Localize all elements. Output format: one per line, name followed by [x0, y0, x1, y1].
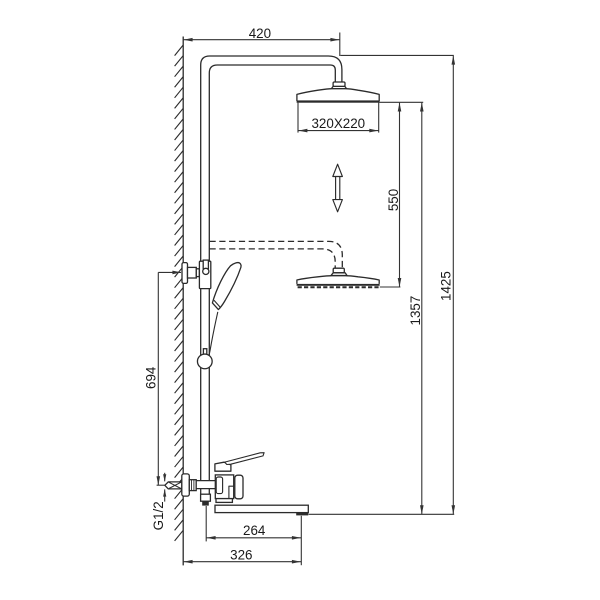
svg-text:320X220: 320X220	[311, 116, 365, 131]
svg-text:264: 264	[243, 523, 266, 538]
svg-text:420: 420	[249, 26, 271, 41]
svg-text:694: 694	[144, 366, 159, 389]
svg-text:1357: 1357	[408, 296, 423, 326]
svg-text:1425: 1425	[438, 271, 453, 301]
svg-text:326: 326	[230, 547, 252, 562]
svg-text:G1/2: G1/2	[151, 501, 166, 530]
svg-text:550: 550	[386, 189, 401, 211]
